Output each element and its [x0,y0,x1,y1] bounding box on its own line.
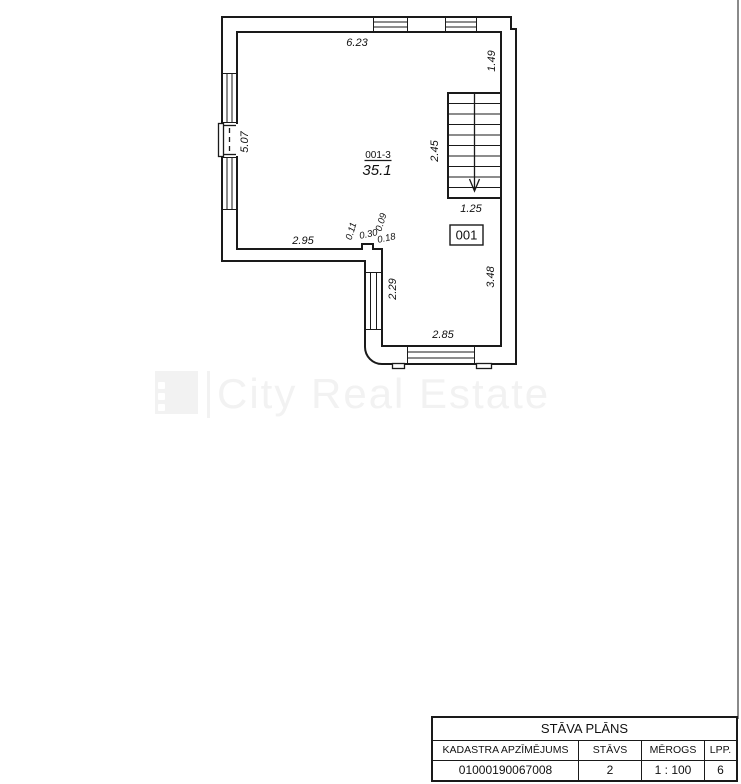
dimension-step-offset-2: 0.09 [374,211,390,233]
opening-jamb [219,124,224,157]
value-stavs: 2 [579,761,642,780]
window-symbol [408,346,475,364]
title-block-value-row: 01000190067008 2 1 : 100 6 [433,760,736,780]
header-stavs: STĀVS [579,741,642,760]
title-block-header-row: KADASTRA APZĪMĒJUMS STĀVS MĒROGS LPP. [433,741,736,760]
dimension-step-offset-1: 0.11 [344,221,360,241]
header-kadastra-apzimejums: KADASTRA APZĪMĒJUMS [433,741,579,760]
window-symbol [222,74,237,123]
header-merogs: MĒROGS [642,741,705,760]
room-number: 001 [456,228,478,243]
dimension-stairs-length: 2.45 [429,139,441,162]
stairs [448,93,501,198]
value-merogs: 1 : 100 [642,761,705,780]
floor-plan-drawing: 001 001-3 35.1 6.23 1.49 5.07 2.45 1.25 … [0,0,741,784]
room-number-box: 001 [450,225,483,245]
title-block-title: STĀVA PLĀNS [433,718,736,741]
window-symbol [446,17,477,32]
dimension-step-offset-3: 0.18 [376,231,397,246]
dimension-stairs-width: 1.25 [460,203,482,215]
window-symbol [365,273,382,330]
dimension-left-section-bottom: 2.95 [291,235,314,247]
room-label: 001-3 35.1 [362,150,391,179]
dimension-lower-left-wall: 2.29 [387,278,399,300]
dimension-right-wall-upper: 1.49 [486,50,498,71]
value-lpp: 6 [705,761,736,780]
window-symbol [222,158,237,210]
dimension-lower-bottom-wall: 2.85 [431,329,454,341]
header-lpp: LPP. [705,741,736,760]
dimension-lower-right-wall: 3.48 [485,265,497,287]
dimension-top-wall: 6.23 [346,37,368,49]
value-kadastra-apzimejums: 01000190067008 [433,761,579,780]
page-edge-line [737,0,739,719]
window-symbol [374,17,408,32]
room-area: 35.1 [362,162,391,179]
title-block: STĀVA PLĀNS KADASTRA APZĪMĒJUMS STĀVS MĒ… [431,716,738,782]
dimension-left-wall: 5.07 [239,130,251,152]
room-code: 001-3 [365,150,391,161]
